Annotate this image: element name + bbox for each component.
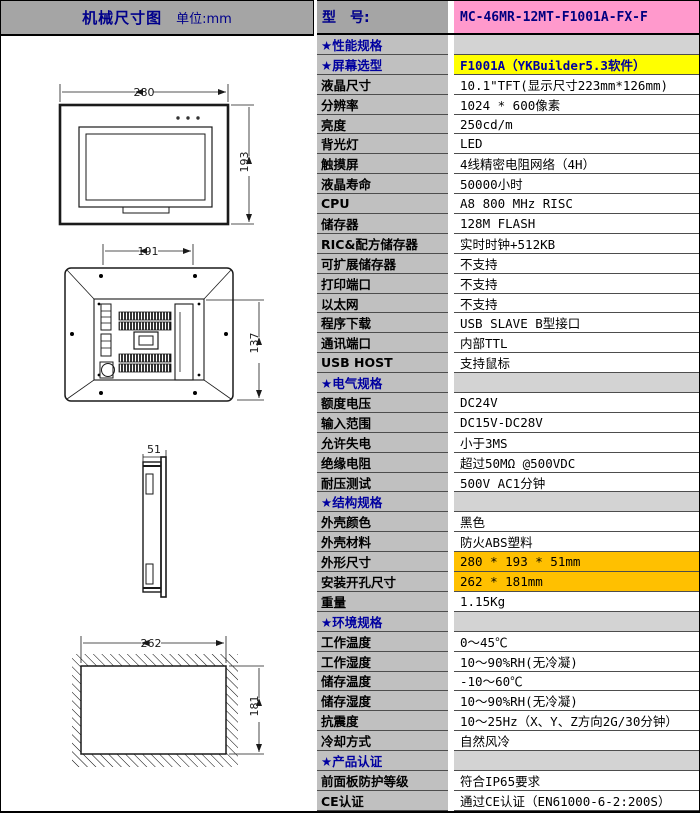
- spec-label: ★环境规格: [317, 612, 448, 632]
- spec-value: 超过50MΩ @500VDC: [454, 453, 699, 473]
- spec-value: DC15V-DC28V: [454, 413, 699, 433]
- spec-value: -10～60℃: [454, 672, 699, 692]
- model-header-row: 型 号: MC-46MR-12MT-F1001A-FX-F: [317, 1, 699, 35]
- spec-row: 分辨率1024 * 600像素: [317, 95, 699, 115]
- spec-row: CE认证通过CE认证（EN61000-6-2:200S）: [317, 791, 699, 811]
- spec-label: 可扩展储存器: [317, 254, 448, 274]
- spec-value: 262 * 181mm: [454, 572, 699, 592]
- spec-row: CPUA8 800 MHz RISC: [317, 194, 699, 214]
- section-header-row: ★性能规格: [317, 35, 699, 55]
- spec-row: 储存湿度10～90%RH(无冷凝): [317, 691, 699, 711]
- spec-label: 以太网: [317, 294, 448, 314]
- spec-value: 实时时钟+512KB: [454, 234, 699, 254]
- spec-label: 储存器: [317, 214, 448, 234]
- section-header-row: ★结构规格: [317, 492, 699, 512]
- side-depth-dim: 51: [147, 443, 161, 456]
- model-number: MC-46MR-12MT-F1001A-FX-F: [454, 1, 699, 33]
- spec-value: 10.1"TFT(显示尺寸223mm*126mm): [454, 75, 699, 95]
- spec-label: RIC&配方储存器: [317, 234, 448, 254]
- spec-row: 亮度250cd/m: [317, 115, 699, 135]
- drawing-title: 机械尺寸图: [82, 7, 162, 28]
- rear-width-dim: 191: [138, 245, 159, 258]
- spec-value: 内部TTL: [454, 333, 699, 353]
- spec-value: 1.15Kg: [454, 592, 699, 612]
- front-view-drawing: 280 193: [60, 84, 254, 224]
- side-view-drawing: 51: [143, 443, 166, 597]
- spec-row: 储存器128M FLASH: [317, 214, 699, 234]
- spec-value: 不支持: [454, 254, 699, 274]
- spec-sheet: 机械尺寸图 单位:mm: [0, 0, 700, 813]
- spec-row: USB HOST支持鼠标: [317, 353, 699, 373]
- spec-row: 程序下载USB SLAVE B型接口: [317, 313, 699, 333]
- spec-row: 外壳颜色黑色: [317, 512, 699, 532]
- spec-label: 通讯端口: [317, 333, 448, 353]
- spec-row: 背光灯LED: [317, 134, 699, 154]
- cutout-width-dim: 262: [141, 637, 162, 650]
- spec-label: 工作湿度: [317, 652, 448, 672]
- spec-label: CE认证: [317, 791, 448, 811]
- spec-row: 工作湿度10～90%RH(无冷凝): [317, 652, 699, 672]
- spec-label: 程序下载: [317, 313, 448, 333]
- drawing-area: 280 193 1: [1, 36, 314, 811]
- front-width-dim: 280: [134, 86, 155, 99]
- spec-label: 打印端口: [317, 274, 448, 294]
- spec-row: 耐压测试500V AC1分钟: [317, 473, 699, 493]
- spec-value: 黑色: [454, 512, 699, 532]
- spec-value: LED: [454, 134, 699, 154]
- spec-row: 重量1.15Kg: [317, 592, 699, 612]
- spec-value: 自然风冷: [454, 731, 699, 751]
- panel-cutout-drawing: 262 181: [72, 636, 264, 767]
- unit-label: 单位:mm: [176, 8, 232, 27]
- spec-value: USB SLAVE B型接口: [454, 313, 699, 333]
- section-header-row: ★环境规格: [317, 612, 699, 632]
- spec-label: 允许失电: [317, 433, 448, 453]
- spec-value: A8 800 MHz RISC: [454, 194, 699, 214]
- spec-label: 储存温度: [317, 672, 448, 692]
- spec-label: 液晶寿命: [317, 174, 448, 194]
- spec-value: 支持鼠标: [454, 353, 699, 373]
- spec-row: 绝缘电阻超过50MΩ @500VDC: [317, 453, 699, 473]
- spec-value: 小于3MS: [454, 433, 699, 453]
- spec-label: 前面板防护等级: [317, 771, 448, 791]
- spec-value: DC24V: [454, 393, 699, 413]
- spec-value: 50000小时: [454, 174, 699, 194]
- spec-row: 通讯端口内部TTL: [317, 333, 699, 353]
- spec-row: 输入范围DC15V-DC28V: [317, 413, 699, 433]
- spec-value: 10～90%RH(无冷凝): [454, 691, 699, 711]
- spec-label: 工作温度: [317, 632, 448, 652]
- spec-row: RIC&配方储存器实时时钟+512KB: [317, 234, 699, 254]
- spec-value: 128M FLASH: [454, 214, 699, 234]
- section-header-row: ★产品认证: [317, 751, 699, 771]
- spec-label: 触摸屏: [317, 154, 448, 174]
- spec-row: 以太网不支持: [317, 294, 699, 314]
- spec-value: 不支持: [454, 274, 699, 294]
- spec-table: 型 号: MC-46MR-12MT-F1001A-FX-F ★性能规格★屏幕选型…: [317, 0, 700, 811]
- drawing-pane-title-bar: 机械尺寸图 单位:mm: [1, 0, 313, 36]
- mechanical-drawing-svg: 280 193 1: [1, 36, 314, 811]
- spec-row: 前面板防护等级符合IP65要求: [317, 771, 699, 791]
- spec-row: 储存温度-10～60℃: [317, 672, 699, 692]
- spec-label: CPU: [317, 194, 448, 214]
- spec-value: 不支持: [454, 294, 699, 314]
- rear-view-drawing: 191: [65, 244, 264, 401]
- spec-label: 亮度: [317, 115, 448, 135]
- spec-row: 触摸屏4线精密电阻网络（4H）: [317, 154, 699, 174]
- spec-row: 抗震度10～25Hz（X、Y、Z方向2G/30分钟）: [317, 711, 699, 731]
- spec-row: 外形尺寸280 * 193 * 51mm: [317, 552, 699, 572]
- spec-label: ★电气规格: [317, 373, 448, 393]
- cutout-height-dim: 181: [248, 696, 261, 717]
- spec-value: 280 * 193 * 51mm: [454, 552, 699, 572]
- spec-value: [454, 751, 699, 771]
- section-header-row: ★电气规格: [317, 373, 699, 393]
- spec-label: 储存湿度: [317, 691, 448, 711]
- spec-value: 10～25Hz（X、Y、Z方向2G/30分钟）: [454, 711, 699, 731]
- spec-label: 背光灯: [317, 134, 448, 154]
- spec-value: [454, 612, 699, 632]
- spec-value: [454, 492, 699, 512]
- spec-row: 安装开孔尺寸262 * 181mm: [317, 572, 699, 592]
- spec-label: ★屏幕选型: [317, 55, 448, 75]
- spec-value: 防火ABS塑料: [454, 532, 699, 552]
- spec-label: 绝缘电阻: [317, 453, 448, 473]
- spec-label: 冷却方式: [317, 731, 448, 751]
- spec-label: USB HOST: [317, 353, 448, 373]
- model-label: 型 号:: [317, 1, 448, 33]
- spec-row: 允许失电小于3MS: [317, 433, 699, 453]
- spec-label: 液晶尺寸: [317, 75, 448, 95]
- spec-value: 500V AC1分钟: [454, 473, 699, 493]
- spec-label: 外壳材料: [317, 532, 448, 552]
- spec-label: 耐压测试: [317, 473, 448, 493]
- spec-label: 额度电压: [317, 393, 448, 413]
- spec-rows: ★性能规格★屏幕选型F1001A（YKBuilder5.3软件）液晶尺寸10.1…: [317, 35, 699, 811]
- spec-value: 10～90%RH(无冷凝): [454, 652, 699, 672]
- spec-row: 额度电压DC24V: [317, 393, 699, 413]
- spec-value: 0～45℃: [454, 632, 699, 652]
- spec-row: 可扩展储存器不支持: [317, 254, 699, 274]
- spec-label: 输入范围: [317, 413, 448, 433]
- rear-height-dim: 137: [248, 333, 261, 354]
- spec-row: 冷却方式自然风冷: [317, 731, 699, 751]
- spec-label: 外壳颜色: [317, 512, 448, 532]
- spec-label: ★结构规格: [317, 492, 448, 512]
- spec-value: [454, 35, 699, 55]
- spec-row: 液晶尺寸10.1"TFT(显示尺寸223mm*126mm): [317, 75, 699, 95]
- spec-value: 4线精密电阻网络（4H）: [454, 154, 699, 174]
- spec-row: 打印端口不支持: [317, 274, 699, 294]
- spec-value: 符合IP65要求: [454, 771, 699, 791]
- spec-value: 250cd/m: [454, 115, 699, 135]
- spec-label: ★产品认证: [317, 751, 448, 771]
- spec-row: 外壳材料防火ABS塑料: [317, 532, 699, 552]
- spec-label: 分辨率: [317, 95, 448, 115]
- spec-label: 抗震度: [317, 711, 448, 731]
- spec-label: 外形尺寸: [317, 552, 448, 572]
- spec-label: 安装开孔尺寸: [317, 572, 448, 592]
- spec-value: 1024 * 600像素: [454, 95, 699, 115]
- spec-value: 通过CE认证（EN61000-6-2:200S）: [454, 791, 699, 811]
- mechanical-drawing-pane: 机械尺寸图 单位:mm: [0, 0, 314, 811]
- spec-row: 液晶寿命50000小时: [317, 174, 699, 194]
- spec-label: ★性能规格: [317, 35, 448, 55]
- spec-value: F1001A（YKBuilder5.3软件）: [454, 55, 699, 75]
- spec-row: ★屏幕选型F1001A（YKBuilder5.3软件）: [317, 55, 699, 75]
- spec-value: [454, 373, 699, 393]
- front-height-dim: 193: [238, 152, 251, 173]
- spec-row: 工作温度0～45℃: [317, 632, 699, 652]
- spec-label: 重量: [317, 592, 448, 612]
